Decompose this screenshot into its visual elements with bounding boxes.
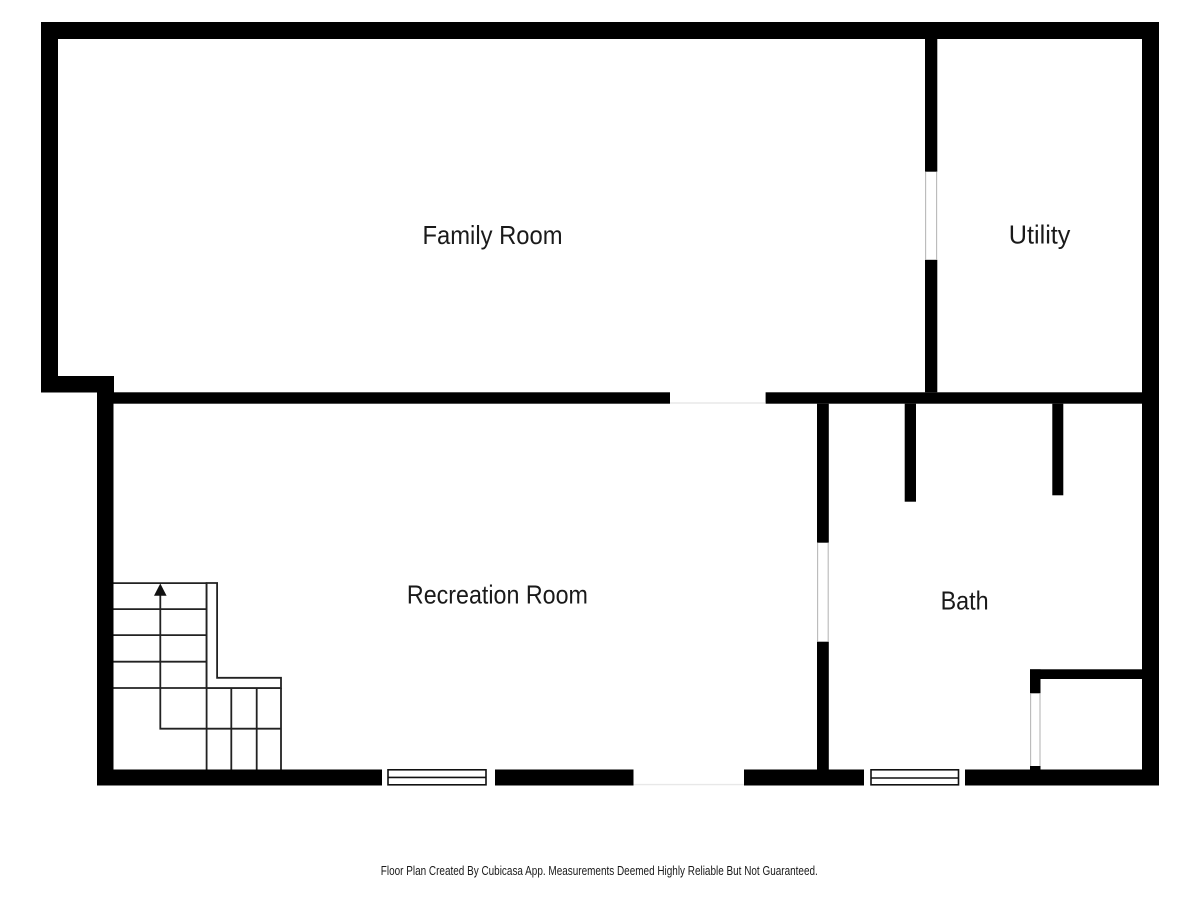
svg-text:Floor Plan Created By Cubicasa: Floor Plan Created By Cubicasa App. Meas… — [381, 863, 818, 878]
svg-text:Recreation Room: Recreation Room — [407, 580, 588, 610]
svg-text:Bath: Bath — [941, 586, 989, 616]
svg-text:Utility: Utility — [1009, 220, 1071, 250]
svg-text:Family Room: Family Room — [423, 220, 563, 250]
